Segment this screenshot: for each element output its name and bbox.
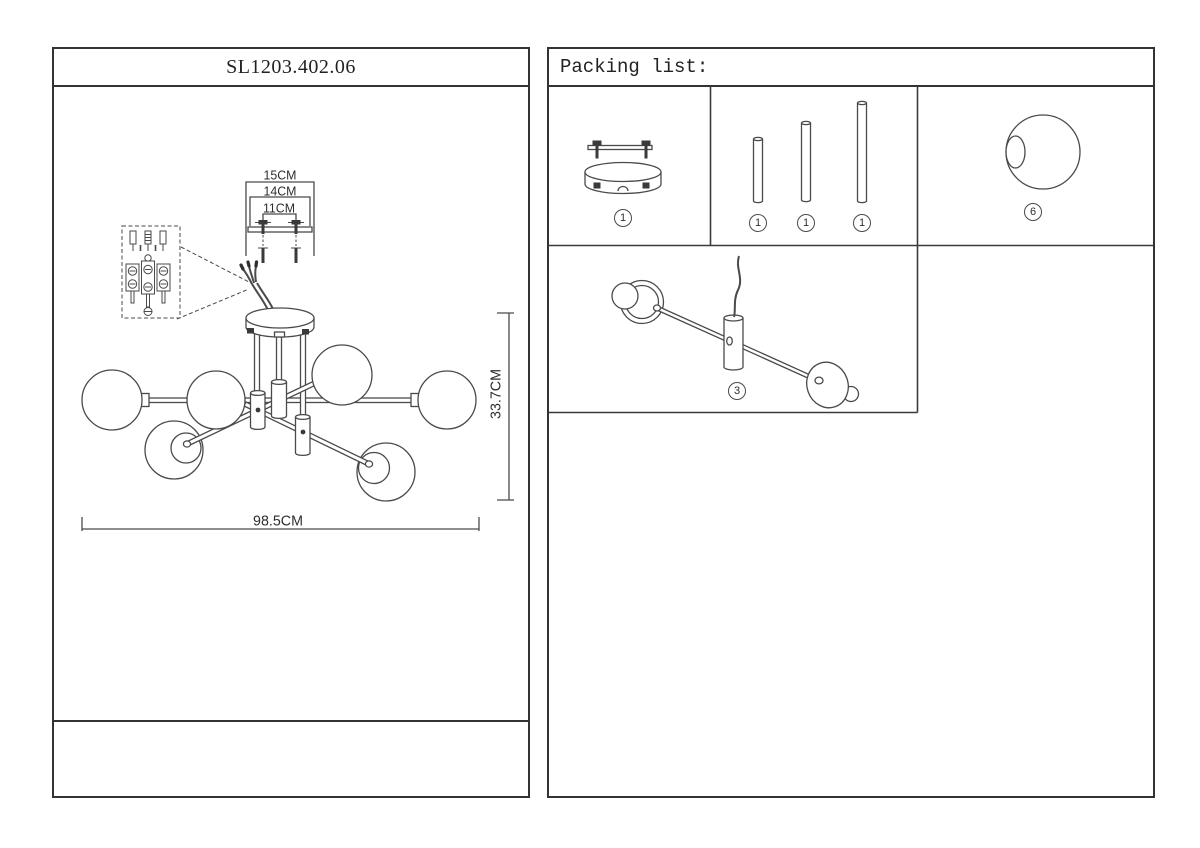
dim-label-11cm: 11CM <box>263 201 295 216</box>
badge-arm: 3 <box>728 382 746 400</box>
badge-globe: 6 <box>1024 203 1042 221</box>
model-number: SL1203.402.06 <box>54 49 528 87</box>
badge-rod-medium: 1 <box>797 214 815 232</box>
dim-label-width: 98.5CM <box>253 513 303 530</box>
title-block-divider <box>54 720 528 722</box>
drawing-panel: SL1203.402.06 <box>52 47 530 798</box>
packing-list-header: Packing list: <box>549 49 1153 87</box>
badge-rod-long: 1 <box>853 214 871 232</box>
packing-list-panel: Packing list: <box>547 47 1155 798</box>
dim-label-height: 33.7CM <box>488 369 505 419</box>
dim-label-15cm: 15CM <box>264 168 297 183</box>
dim-label-14cm: 14CM <box>264 184 297 199</box>
badge-canopy: 1 <box>614 209 632 227</box>
manual-page: SL1203.402.06 Packing list: <box>0 0 1200 848</box>
badge-rod-short: 1 <box>749 214 767 232</box>
